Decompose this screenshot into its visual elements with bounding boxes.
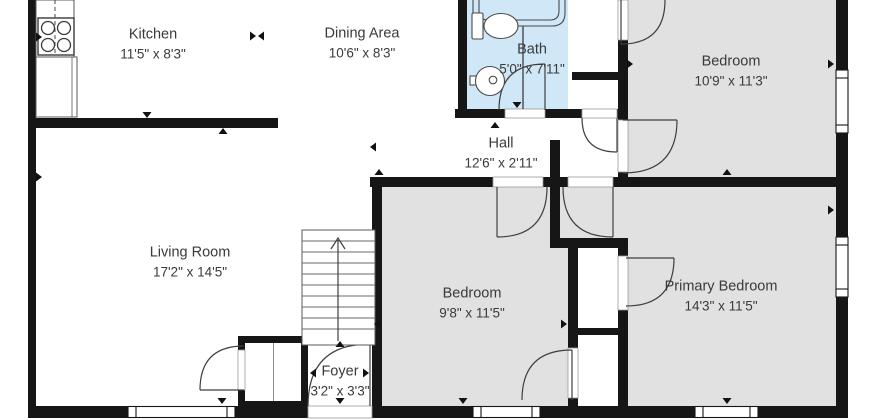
door-living-closet <box>200 346 244 390</box>
window <box>128 407 235 418</box>
window <box>836 237 848 297</box>
toilet-icon <box>472 13 518 39</box>
kitchen-fixtures <box>36 0 77 117</box>
floor-plan: Kitchen 11'5" x 8'3" Dining Area 10'6" x… <box>0 0 870 420</box>
counter <box>36 57 77 117</box>
room-fills <box>382 0 836 406</box>
window <box>836 70 848 133</box>
stove-icon <box>38 18 74 55</box>
window <box>695 407 758 418</box>
staircase <box>302 230 375 345</box>
door-linen-closet <box>582 118 617 152</box>
window <box>473 407 540 418</box>
door-front-entry <box>308 344 370 406</box>
floor-plan-drawing <box>0 0 870 420</box>
